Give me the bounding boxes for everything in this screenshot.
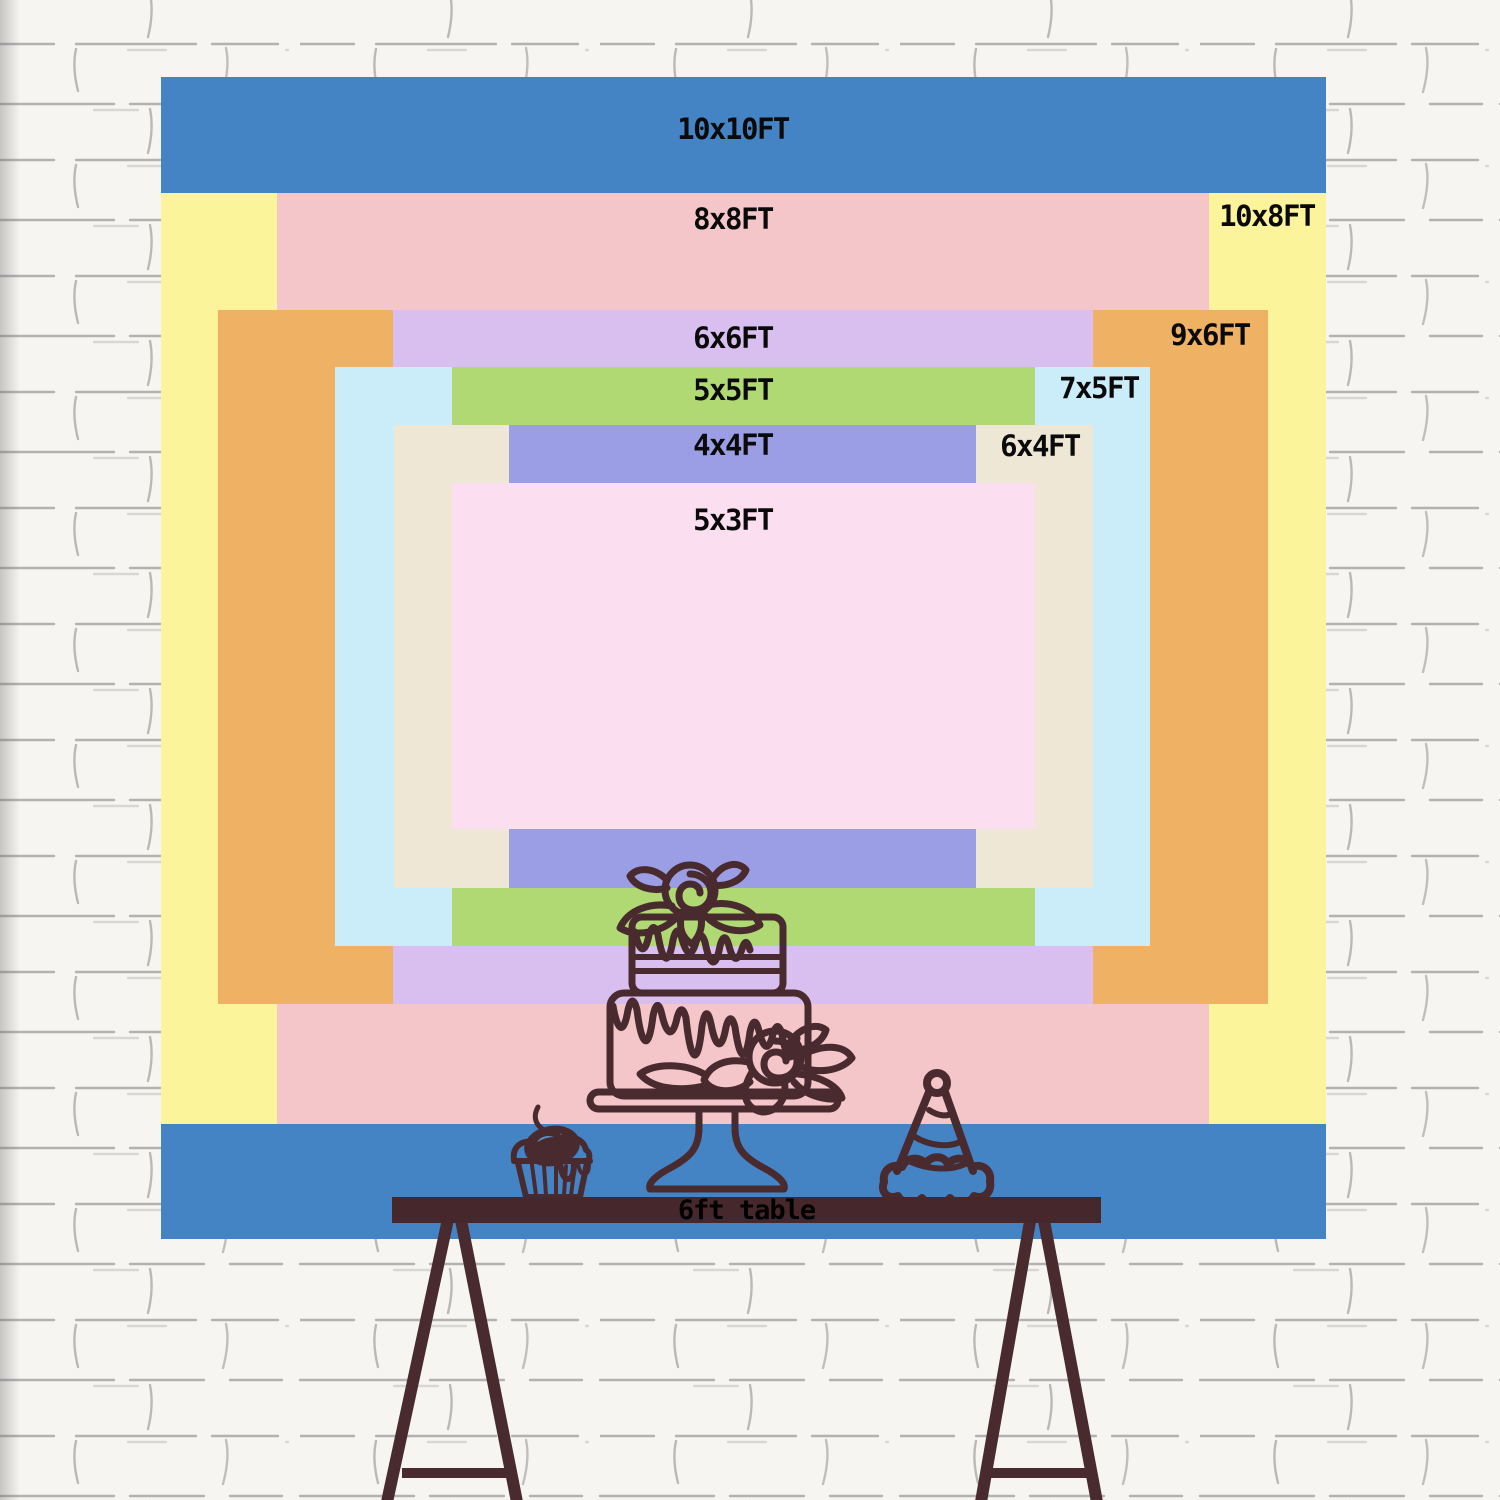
size-label-4x4ft: 4x4FT xyxy=(693,428,773,462)
size-label-8x8ft: 8x8FT xyxy=(693,202,773,236)
size-labels: 10x10FT10x8FT8x8FT9x6FT6x6FT7x5FT5x5FT6x… xyxy=(0,0,1500,1500)
size-label-6x6ft: 6x6FT xyxy=(693,321,773,355)
size-label-9x6ft: 9x6FT xyxy=(1170,318,1250,352)
table-size-label: 6ft table xyxy=(678,1197,815,1224)
table-top: 6ft table xyxy=(392,1197,1101,1223)
size-label-5x3ft: 5x3FT xyxy=(693,503,773,537)
size-label-10x8ft: 10x8FT xyxy=(1219,199,1315,233)
size-label-10x10ft: 10x10FT xyxy=(677,112,789,146)
backdrop-size-chart-scene: 10x10FT10x8FT8x8FT9x6FT6x6FT7x5FT5x5FT6x… xyxy=(0,0,1500,1500)
size-label-5x5ft: 5x5FT xyxy=(693,373,773,407)
size-label-6x4ft: 6x4FT xyxy=(1000,429,1080,463)
size-label-7x5ft: 7x5FT xyxy=(1059,371,1139,405)
